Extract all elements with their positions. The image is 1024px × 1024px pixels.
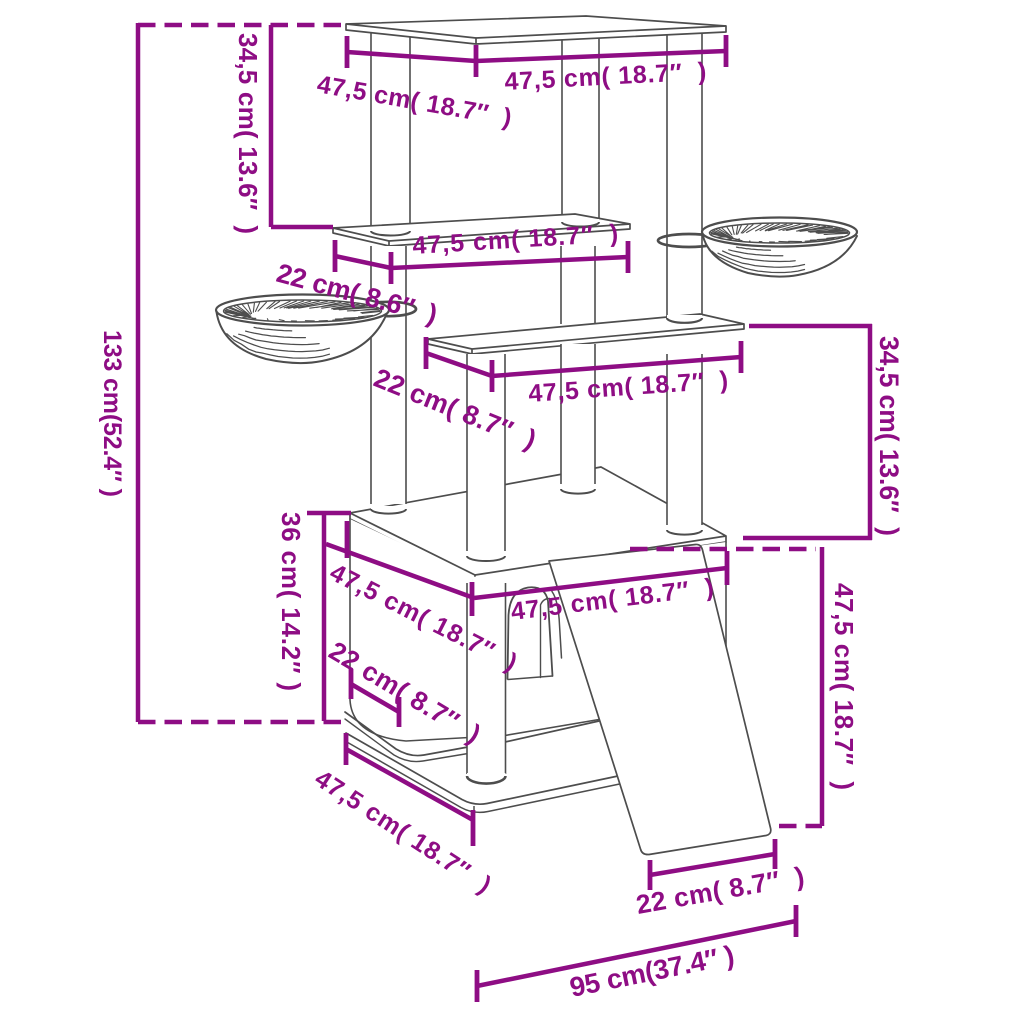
svg-text:34,5 cm( 13.6″ ): 34,5 cm( 13.6″ ) bbox=[874, 336, 904, 536]
svg-text:34,5 cm( 13.6″ ): 34,5 cm( 13.6″ ) bbox=[233, 33, 263, 234]
svg-text:133 cm(52.4″ ): 133 cm(52.4″ ) bbox=[98, 330, 126, 497]
svg-text:36 cm( 14.2″ ): 36 cm( 14.2″ ) bbox=[276, 512, 306, 691]
svg-text:47,5 cm( 18.7″ ): 47,5 cm( 18.7″ ) bbox=[829, 583, 859, 790]
